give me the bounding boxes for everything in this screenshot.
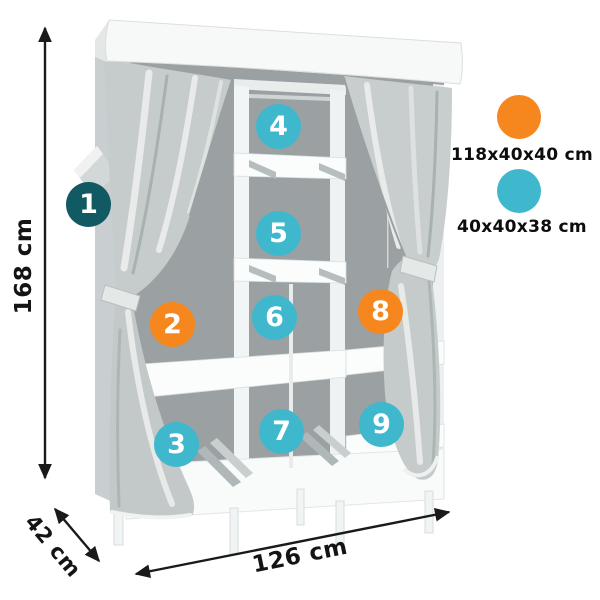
marker-number: 6 — [265, 304, 284, 331]
leg — [425, 491, 433, 533]
marker-number: 2 — [163, 311, 182, 338]
marker-number: 9 — [372, 411, 391, 438]
height-dimension-label: 168 cm — [11, 218, 37, 315]
legend-dot-cyan — [497, 169, 541, 213]
marker-badge-9: 9 — [359, 402, 404, 447]
marker-number: 1 — [79, 191, 98, 218]
marker-badge-1: 1 — [66, 182, 111, 227]
wardrobe-illustration — [0, 0, 600, 600]
marker-badge-4: 4 — [256, 104, 301, 149]
marker-number: 3 — [167, 431, 186, 458]
leg — [297, 489, 304, 525]
marker-badge-5: 5 — [256, 211, 301, 256]
marker-number: 8 — [371, 298, 390, 325]
marker-badge-3: 3 — [154, 422, 199, 467]
marker-badge-7: 7 — [259, 409, 304, 454]
legend-label-small-compartment: 40x40x38 cm — [427, 217, 600, 237]
marker-number: 4 — [269, 113, 288, 140]
leg — [230, 508, 238, 554]
marker-badge-6: 6 — [252, 295, 297, 340]
marker-badge-8: 8 — [358, 289, 403, 334]
marker-number: 7 — [272, 418, 291, 445]
product-dimension-diagram: 1 2 3 4 5 6 7 8 9 168 cm 42 cm 126 cm 11… — [0, 0, 600, 600]
legend-label-large-compartment: 118x40x40 cm — [427, 145, 600, 165]
marker-number: 5 — [269, 220, 288, 247]
legend-dot-orange — [497, 95, 541, 139]
marker-badge-2: 2 — [150, 302, 195, 347]
